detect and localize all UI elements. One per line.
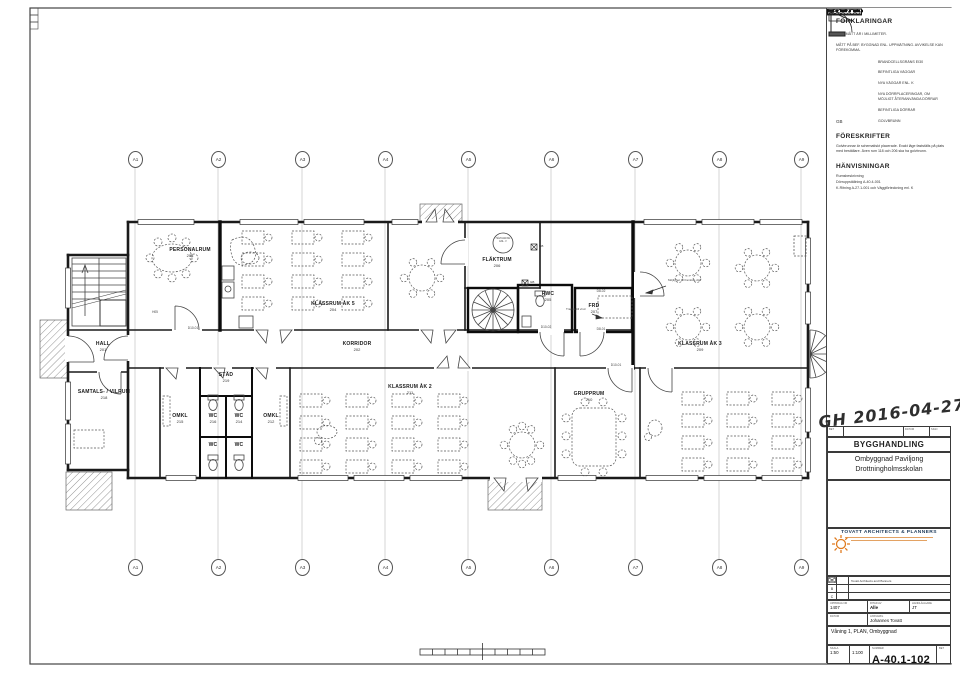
grid-bubble: A3 xyxy=(295,559,310,576)
reference-line: Rumsbeskrivning xyxy=(836,174,945,179)
door-label: D10-02 xyxy=(541,325,551,329)
door-label: D10-01 xyxy=(188,326,198,330)
grid-bubble: A5 xyxy=(461,151,476,168)
consultant-row: B xyxy=(828,585,950,593)
titleblock-fields-row1: UPPDRAG NR 1407 RITAD AV Alle HANDLÄGGAR… xyxy=(827,600,951,613)
grid-bubble: A8 xyxy=(712,559,727,576)
field-datum: DATUM xyxy=(828,614,868,625)
consultant-row: A Tovatt Architects and Planners xyxy=(828,577,950,585)
grid-bubble: A2 xyxy=(211,559,226,576)
status-bygghandling: BYGGHANDLING xyxy=(827,437,951,452)
room-label: STÄD219 xyxy=(219,373,233,383)
title-block-panel: FÖRKLARINGAR ALLA MÅTT ÄR I MILLIMETER. … xyxy=(826,8,952,663)
floor-plan-drawing xyxy=(0,0,960,674)
firm-address-line xyxy=(845,537,933,539)
project-name: Ombyggnad Paviljong Drottningholmsskolan xyxy=(827,452,951,480)
grid-bubble: A4 xyxy=(378,559,393,576)
grid-bubble: A9 xyxy=(794,151,809,168)
legend-item-new-wall: NYA VÄGGAR ENL. K xyxy=(836,81,945,86)
grid-bubble: A1 xyxy=(128,151,143,168)
sun-logo-icon xyxy=(828,532,854,556)
legend-item-existing-wall: BEFINTLIGA VÄGGAR xyxy=(836,70,945,75)
grid-bubble: A3 xyxy=(295,151,310,168)
grid-bubble: A7 xyxy=(628,151,643,168)
reference-line: Dörruppställning A-40.4-001 xyxy=(836,180,945,185)
room-label: KLASSRUM ÅK 2211 xyxy=(388,385,432,395)
grid-bubble: A6 xyxy=(544,151,559,168)
room-label: KLASSRUM ÅK 5204 xyxy=(311,302,355,312)
room-label: OMKL215 xyxy=(172,414,188,424)
room-label: WC214 xyxy=(235,414,244,424)
stair-main xyxy=(72,258,126,326)
room-label: HALL201 xyxy=(96,342,110,352)
grid-bubble: A2 xyxy=(211,151,226,168)
room-label: SAMTALS- / VILRUM218 xyxy=(78,390,130,400)
firm-mark-icon xyxy=(837,577,849,584)
grid-bubble: A5 xyxy=(461,559,476,576)
legend-item-golvbrunn: GB GOLVBRUNN xyxy=(836,119,945,124)
gb-mark-label: GB xyxy=(539,244,543,248)
door-label: H05 xyxy=(152,310,158,314)
reference-line: K-Ritning A-27.1-001 och Väggförteckning… xyxy=(836,186,945,191)
legend-item-new-door: NYA DÖRRPLACERINGAR, OM MÖJLIGT ÅTERANVÄ… xyxy=(836,92,945,102)
room-label: GRUPPRUM210 xyxy=(574,392,605,402)
firm-logo-box: TOVATT ARCHITECTS & PLANNERS xyxy=(827,528,951,576)
gb-mark-label: GB xyxy=(530,280,534,284)
legend-note: MÅTT PÅ BEF. BYGGNAD ENL. UPPMÄTNING. AV… xyxy=(836,43,945,53)
grid-bubble: A6 xyxy=(544,559,559,576)
references-title: HÄNVISNINGAR xyxy=(836,163,945,170)
room-label: WC216 xyxy=(209,414,218,424)
spiral-stair-interior xyxy=(472,289,514,331)
field-handlaggare: HANDLÄGGARE JT xyxy=(910,601,950,612)
grid-bubble: A4 xyxy=(378,151,393,168)
vent-annotation: HÅLTAGNING ENL. V xyxy=(493,238,513,244)
door-label: D8-02 xyxy=(597,289,606,293)
room-label: RWC205 xyxy=(542,292,554,302)
grid-bubble: A1 xyxy=(128,559,143,576)
field-uppdragsnr: UPPDRAG NR 1407 xyxy=(828,601,868,612)
titleblock-fields-row2: DATUM ANSVARIG Johannes Tovatt xyxy=(827,613,951,626)
scale-a1: SKALA 1:50 xyxy=(828,646,850,663)
titleblock-bottom-row: SKALA 1:50 1:100 NUMMER A-40.1-102 BET xyxy=(827,645,951,664)
room-label: WC xyxy=(235,443,244,449)
bet-cell: BET xyxy=(937,646,950,663)
field-ansvarig: ANSVARIG Johannes Tovatt xyxy=(868,614,950,625)
grid-lines xyxy=(135,166,801,559)
drawing-number: NUMMER A-40.1-102 xyxy=(870,646,937,663)
furniture xyxy=(74,231,802,476)
scale-a3: 1:100 xyxy=(850,646,870,663)
room-label: KLASSRUM ÅK 3209 xyxy=(678,342,722,352)
drawing-sheet: PERSONALRUM203 KLASSRUM ÅK 5204 KORRIDOR… xyxy=(0,0,960,674)
legend: FÖRKLARINGAR ALLA MÅTT ÄR I MILLIMETER. … xyxy=(827,8,952,192)
room-label: KORRIDOR202 xyxy=(343,342,372,352)
prescriptions-text: Golvbrunnar är schematiskt placerade. Ex… xyxy=(836,144,945,154)
scale-bar xyxy=(420,643,545,660)
drawing-content-title: Våning 1, PLAN, Ombyggnad xyxy=(827,626,951,645)
firm-address-line xyxy=(851,540,927,542)
field-ritad-av: RITAD AV Alle xyxy=(868,601,910,612)
room-label: PERSONALRUM203 xyxy=(169,248,210,258)
legend-item-existing-door: BEFINTLIGA DÖRRAR xyxy=(836,108,945,113)
consultant-table: A Tovatt Architects and Planners B C xyxy=(827,576,951,600)
empty-box xyxy=(827,480,951,528)
door-label: D8-01 xyxy=(597,327,606,331)
room-label: FLÄKTRUM206 xyxy=(482,258,511,268)
door-label: D10-01 xyxy=(611,363,621,367)
grid-bubble: A7 xyxy=(628,559,643,576)
revision-strip: BET DATUM SIGN xyxy=(827,426,951,437)
grid-bubble: A9 xyxy=(794,559,809,576)
grid-bubble: A8 xyxy=(712,151,727,168)
gb-symbol: GB xyxy=(836,119,843,124)
future-door-annotation: Möjlighet till framtida dörr xyxy=(668,279,714,283)
room-label: OMKL212 xyxy=(263,414,279,424)
attic-annotation: Trappa till vind xyxy=(566,308,594,312)
legend-item-firewall: BRANDCELLSGRÄNS EI30 xyxy=(836,60,945,65)
room-label: WC xyxy=(209,443,218,449)
sheet-frame xyxy=(30,8,951,664)
prescriptions-title: FÖRESKRIFTER xyxy=(836,133,945,140)
